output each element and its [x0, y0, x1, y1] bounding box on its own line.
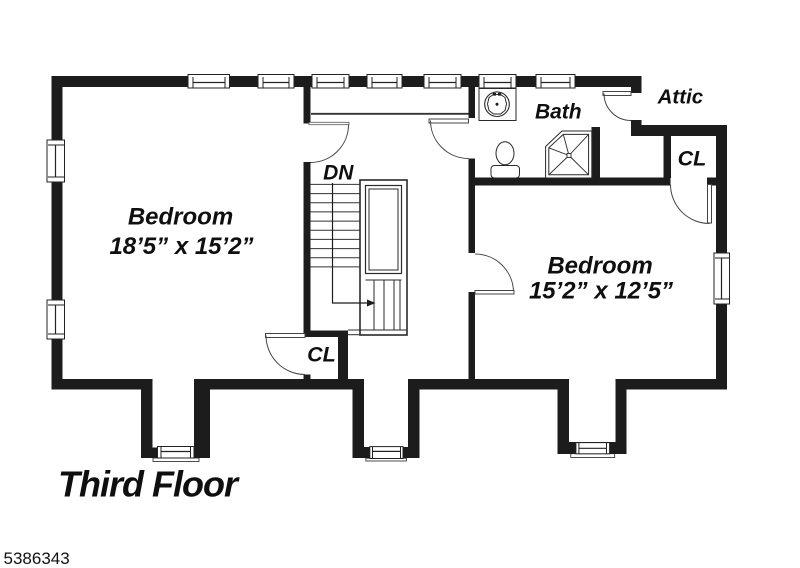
svg-text:DN: DN: [323, 161, 354, 184]
svg-text:Bedroom: Bedroom: [547, 253, 652, 280]
svg-text:Bath: Bath: [535, 100, 582, 123]
svg-text:CL: CL: [678, 147, 707, 171]
svg-text:CL: CL: [307, 343, 336, 367]
svg-text:15’2” x 12’5”: 15’2” x 12’5”: [529, 278, 673, 305]
svg-text:18’5” x 15’2”: 18’5” x 15’2”: [109, 233, 253, 260]
svg-text:Bedroom: Bedroom: [128, 204, 233, 231]
svg-text:Third Floor: Third Floor: [58, 464, 240, 505]
svg-text:Attic: Attic: [657, 86, 704, 109]
svg-text:5386343: 5386343: [4, 549, 70, 568]
